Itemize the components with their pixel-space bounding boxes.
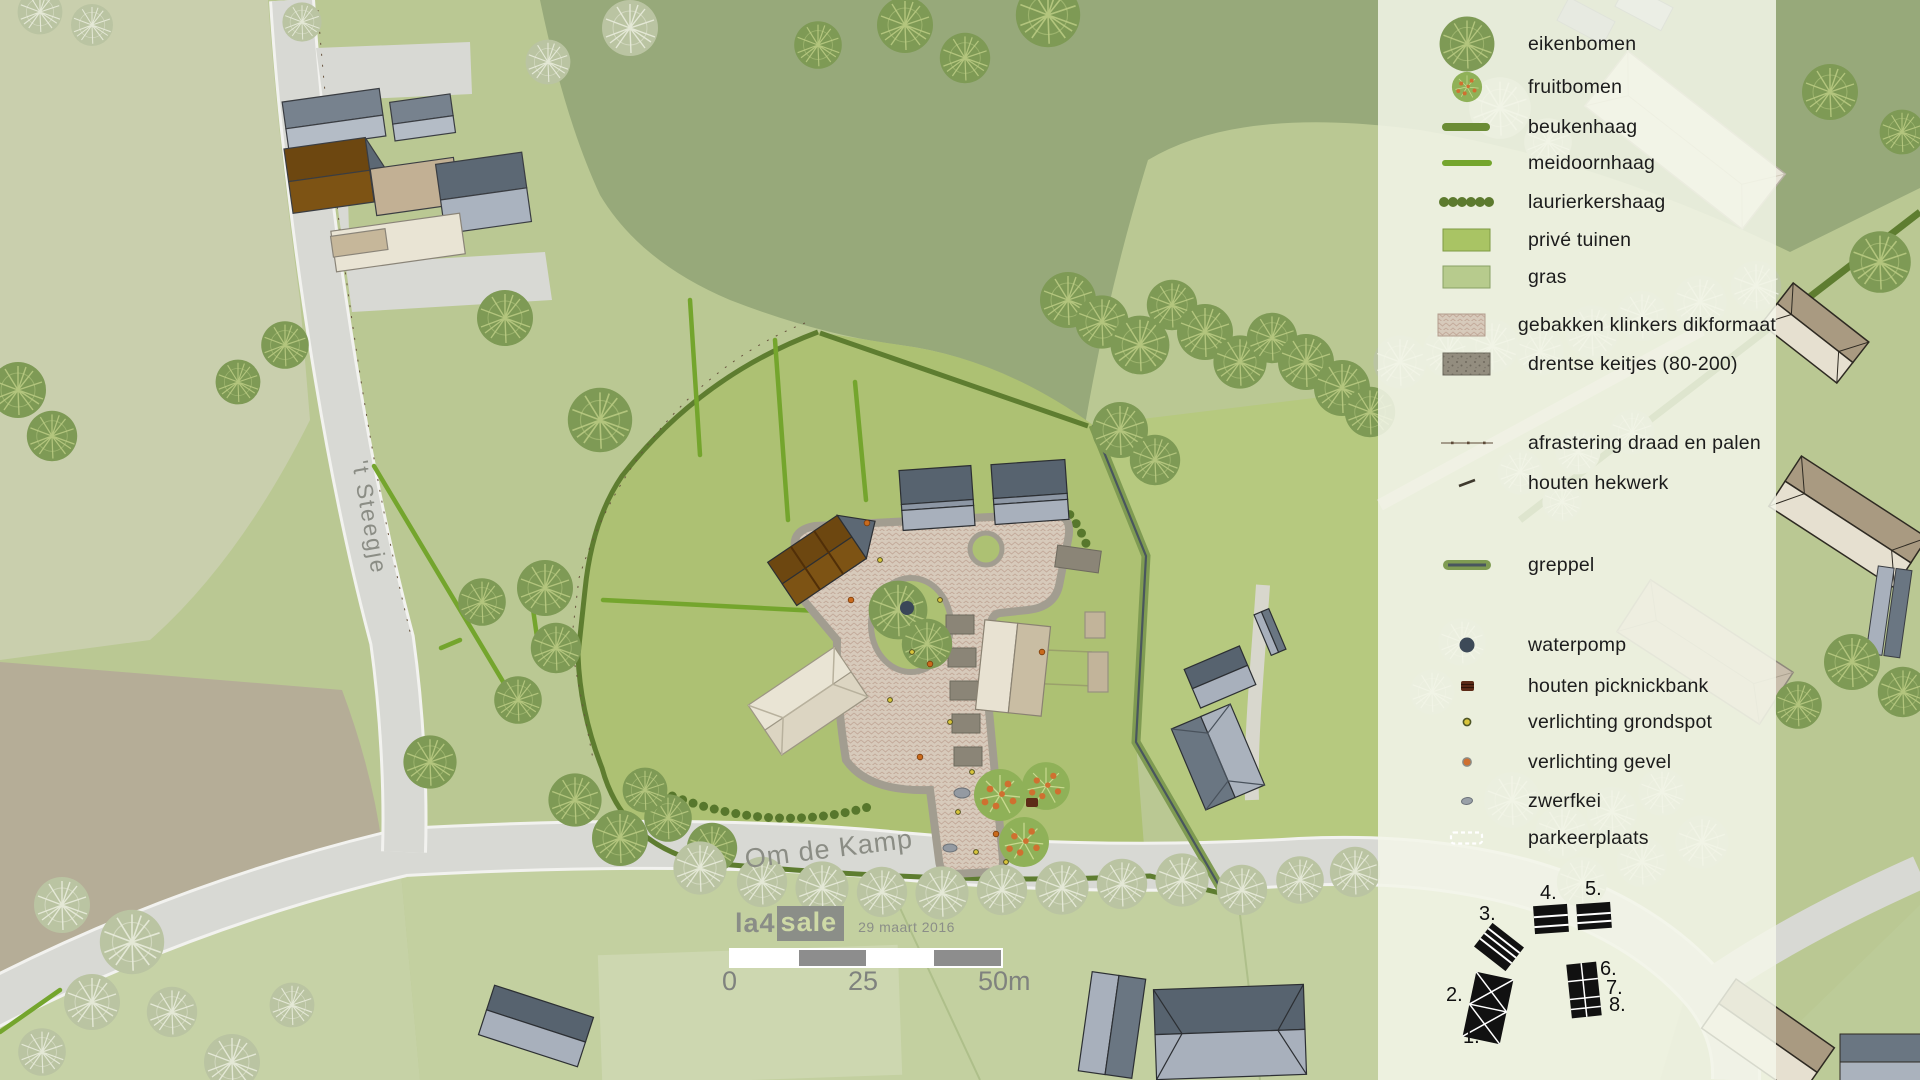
prive-tuinen-swatch [1378,227,1528,253]
houten-hekwerk-icon [1378,476,1528,490]
key-number-8: 8. [1609,994,1626,1017]
picknickbank-marker [1026,798,1038,807]
legend-item-houten-hekwerk: houten hekwerk [1378,468,1776,498]
scale-tick-0: 0 [722,966,737,997]
legend-item-prive-tuinen: privé tuinen [1378,225,1776,255]
slate-barn-a [899,466,975,531]
legend-item-houten-picknickbank: houten picknickbank [1378,671,1776,701]
legend-item-waterpomp: waterpomp [1378,630,1776,660]
beukenhaag-icon [1378,121,1528,133]
eikenbomen-icon [1378,15,1528,73]
logo-sale: sale [777,906,845,941]
legend-item-beukenhaag: beukenhaag [1378,112,1776,142]
scale-tick-50m: 50m [978,966,1031,997]
legend-item-gebakken-klinkers: gebakken klinkers dikformaat [1378,310,1776,340]
legend-item-afrastering: afrastering draad en palen [1378,428,1776,458]
legend-item-meidoornhaag: meidoornhaag [1378,148,1776,178]
zwerfkei-marker [954,788,970,798]
waterpomp-icon [1378,636,1528,654]
legend-item-fruitbomen: fruitbomen [1378,72,1776,102]
legend-panel: eikenbomen fruitbomen beukenhaag meidoor… [1378,0,1776,1080]
laurierkershaag-icon [1378,195,1528,209]
gebakken-klinkers-swatch [1378,312,1518,338]
key-number-5: 5. [1585,878,1602,901]
legend-item-laurierkershaag: laurierkershaag [1378,187,1776,217]
verlichting-grondspot-icon [1378,716,1528,728]
gras-swatch [1378,264,1528,290]
verlichting-gevel-icon [1378,756,1528,768]
key-number-2: 2. [1446,984,1463,1007]
drentse-keitjes-swatch [1378,351,1528,377]
slate-barn-b [991,459,1069,524]
key-number-3: 3. [1479,903,1496,926]
legend-item-eikenbomen: eikenbomen [1378,29,1776,59]
legend-item-zwerfkei: zwerfkei [1378,786,1776,816]
legend-item-greppel: greppel [1378,550,1776,580]
key-number-4: 4. [1540,882,1557,905]
houten-picknickbank-icon [1378,678,1528,694]
greppel-icon [1378,557,1528,573]
key-number-1: 1. [1463,1026,1480,1049]
scale-bar [731,950,1001,966]
logo-la4: la4 [735,908,776,939]
legend-item-verlichting-gevel: verlichting gevel [1378,747,1776,777]
legend-item-verlichting-grondspot: verlichting grondspot [1378,707,1776,737]
zwerfkei-icon [1378,795,1528,807]
legend-item-gras: gras [1378,262,1776,292]
east-building [975,620,1050,716]
meidoornhaag-icon [1378,158,1528,168]
big-slate-hip [1153,984,1306,1079]
fruitbomen-icon [1378,70,1528,104]
scale-tick-25: 25 [848,966,878,997]
plan-date: 29 maart 2016 [858,919,955,935]
legend-item-parkeerplaats: parkeerplaats [1378,823,1776,853]
credit-block: la4sale 29 maart 2016 [735,906,955,941]
site-plan-page: 't Steegje Om de Kamp eikenbomen [0,0,1920,1080]
waterpomp-marker [900,601,914,615]
legend-item-drentse-keitjes: drentse keitjes (80-200) [1378,349,1776,379]
afrastering-icon [1378,438,1528,448]
parkeerplaats-icon [1378,830,1528,846]
